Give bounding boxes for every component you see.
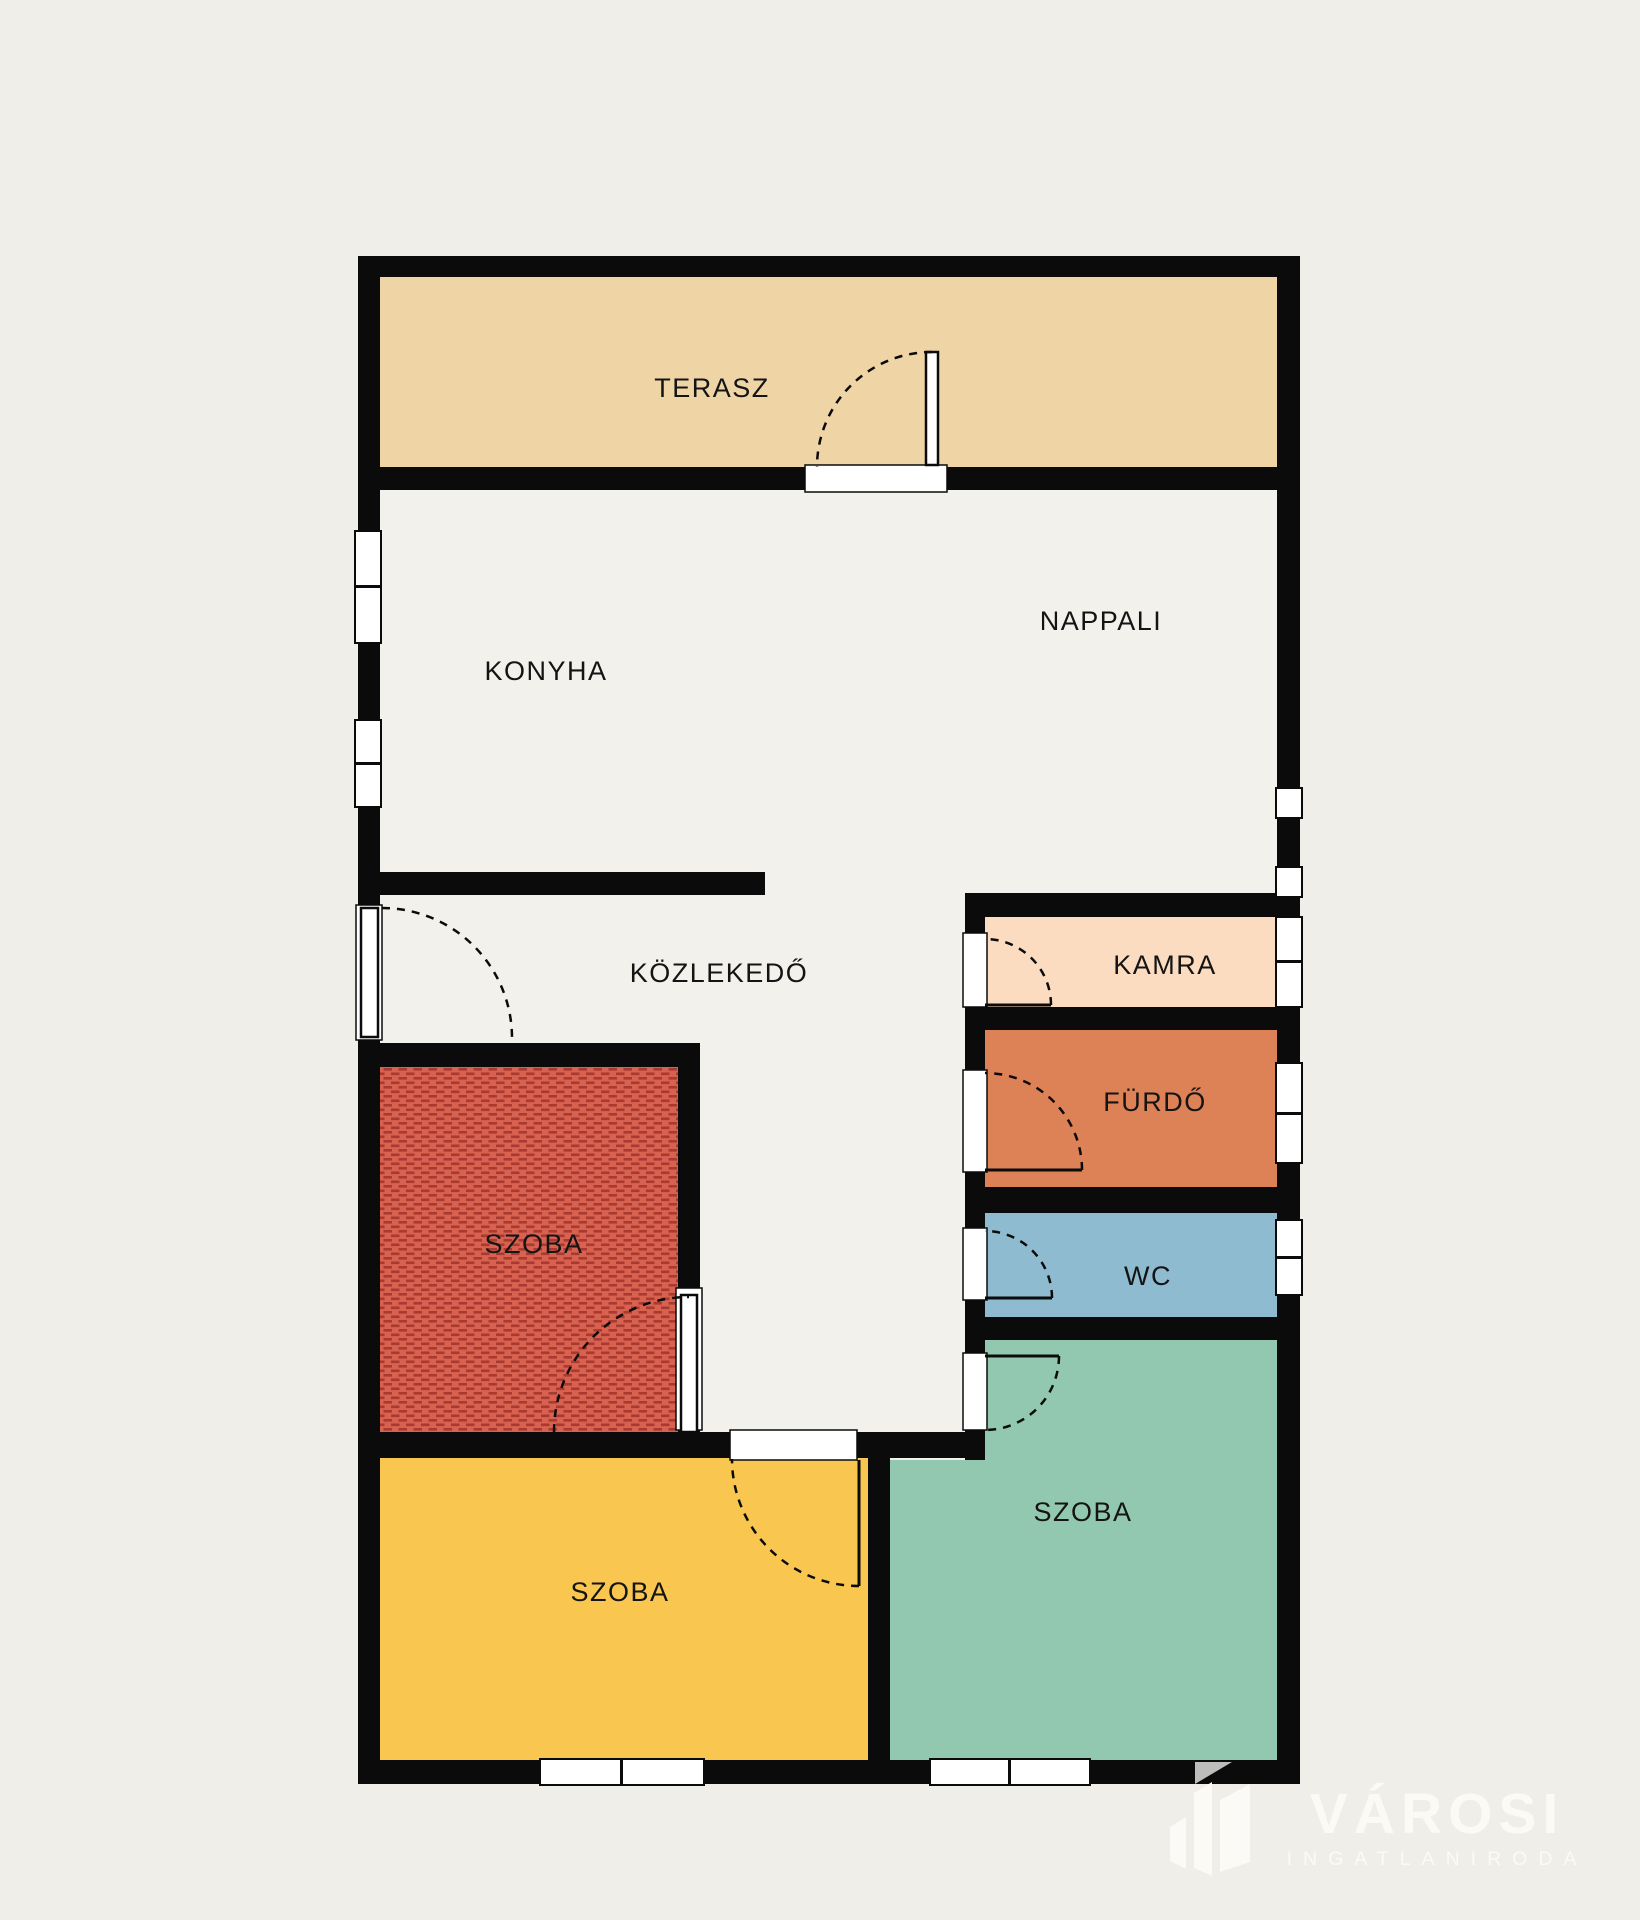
wc-door-opening	[963, 1228, 987, 1300]
label-furdo: FÜRDŐ	[1103, 1086, 1207, 1117]
wall-szoba-divider	[868, 1432, 890, 1784]
wall-konyha-hall	[380, 872, 765, 895]
label-konyha: KONYHA	[484, 656, 607, 686]
mullion	[1276, 1256, 1302, 1259]
label-wc: WC	[1124, 1261, 1172, 1291]
szoba-red-door-leaf	[681, 1295, 697, 1432]
terasz-door-opening	[805, 465, 947, 492]
window-nappali-2	[1276, 867, 1302, 897]
wall-szoba-red-bottom	[358, 1432, 985, 1458]
entrance-door-leaf	[361, 908, 378, 1037]
label-kozlekedo: KÖZLEKEDŐ	[630, 957, 809, 988]
logo-brand-text: VÁROSI	[1310, 1782, 1565, 1846]
mullion	[1008, 1759, 1011, 1785]
label-szoba-yellow: SZOBA	[570, 1577, 669, 1607]
logo-tagline-text: INGATLANIRODA	[1287, 1848, 1588, 1870]
wall-above-kamra	[965, 893, 1277, 917]
room-szoba-yellow	[380, 1458, 868, 1760]
label-terasz: TERASZ	[654, 373, 770, 403]
label-kamra: KAMRA	[1113, 950, 1217, 980]
mullion	[1276, 960, 1302, 963]
wall-wc-szoba	[965, 1317, 1277, 1340]
wall-top	[358, 256, 1300, 277]
room-terasz	[380, 277, 1277, 467]
szoba-yellow-door-opening	[730, 1430, 857, 1460]
label-nappali: NAPPALI	[1040, 606, 1163, 636]
szoba-green-door-opening	[963, 1353, 987, 1430]
label-szoba-green: SZOBA	[1033, 1497, 1132, 1527]
wall-bottom	[358, 1760, 1300, 1784]
mullion	[620, 1759, 623, 1785]
mullion	[1276, 1112, 1302, 1115]
window-nappali-1	[1276, 788, 1302, 818]
kamra-door-opening	[963, 933, 987, 1007]
label-szoba-red: SZOBA	[484, 1229, 583, 1259]
logo-block-mid	[1194, 1782, 1212, 1876]
wall-right	[1277, 256, 1300, 1784]
room-szoba-green-upper	[985, 1340, 1277, 1462]
terasz-door-leaf	[926, 352, 938, 465]
mullion	[355, 585, 381, 588]
wall-furdo-wc	[965, 1187, 1277, 1213]
floor-plan: TERASZ KONYHA NAPPALI KÖZLEKEDŐ KAMRA FÜ…	[0, 0, 1640, 1920]
mullion	[355, 762, 381, 765]
wall-szoba-red-top	[358, 1043, 700, 1067]
wall-kamra-furdo	[965, 1007, 1277, 1030]
furdo-door-opening	[963, 1070, 987, 1172]
